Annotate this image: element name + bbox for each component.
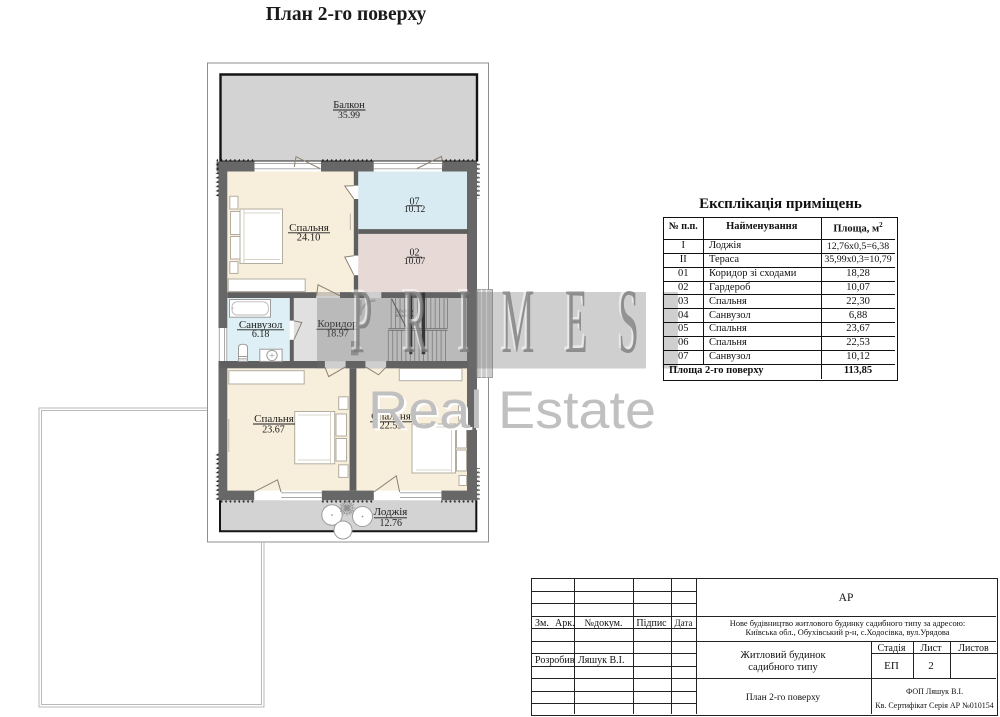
svg-text:6.18: 6.18: [252, 329, 270, 340]
svg-text:35.99: 35.99: [338, 110, 360, 121]
svg-text:23.67: 23.67: [262, 424, 285, 435]
svg-text:PRIMES: PRIMES: [352, 272, 670, 373]
svg-text:10.07: 10.07: [404, 257, 426, 267]
svg-text:Лоджія: Лоджія: [374, 506, 408, 518]
svg-text:Real Estate: Real Estate: [368, 381, 656, 440]
svg-text:Спальня: Спальня: [254, 413, 294, 425]
svg-text:24.10: 24.10: [297, 233, 321, 244]
svg-text:12.76: 12.76: [380, 518, 403, 529]
svg-text:10.12: 10.12: [404, 205, 426, 215]
